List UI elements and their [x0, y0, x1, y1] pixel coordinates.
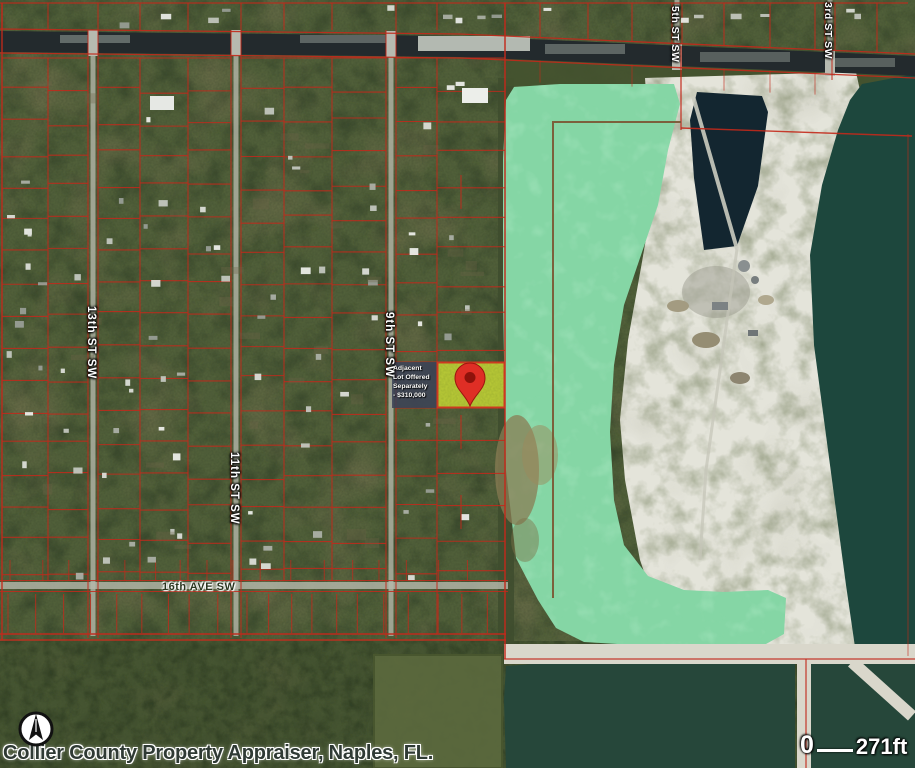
- road-13th-st-sw: [91, 56, 96, 636]
- road-11th-st-sw: [234, 56, 239, 636]
- road-5th-st-sw: [675, 0, 680, 48]
- south-lake: [504, 660, 795, 768]
- road-16th-ave-sw: [0, 582, 508, 589]
- aerial-map-view[interactable]: 13th ST SW 11th ST SW 9th ST SW 5th ST S…: [0, 0, 915, 768]
- canal-bridge: [88, 30, 98, 56]
- map-canvas[interactable]: [0, 0, 915, 768]
- road-3rd-st-sw: [828, 0, 833, 52]
- adjacent-lot-parcel[interactable]: [392, 362, 437, 408]
- road-9th-st-sw: [389, 56, 394, 636]
